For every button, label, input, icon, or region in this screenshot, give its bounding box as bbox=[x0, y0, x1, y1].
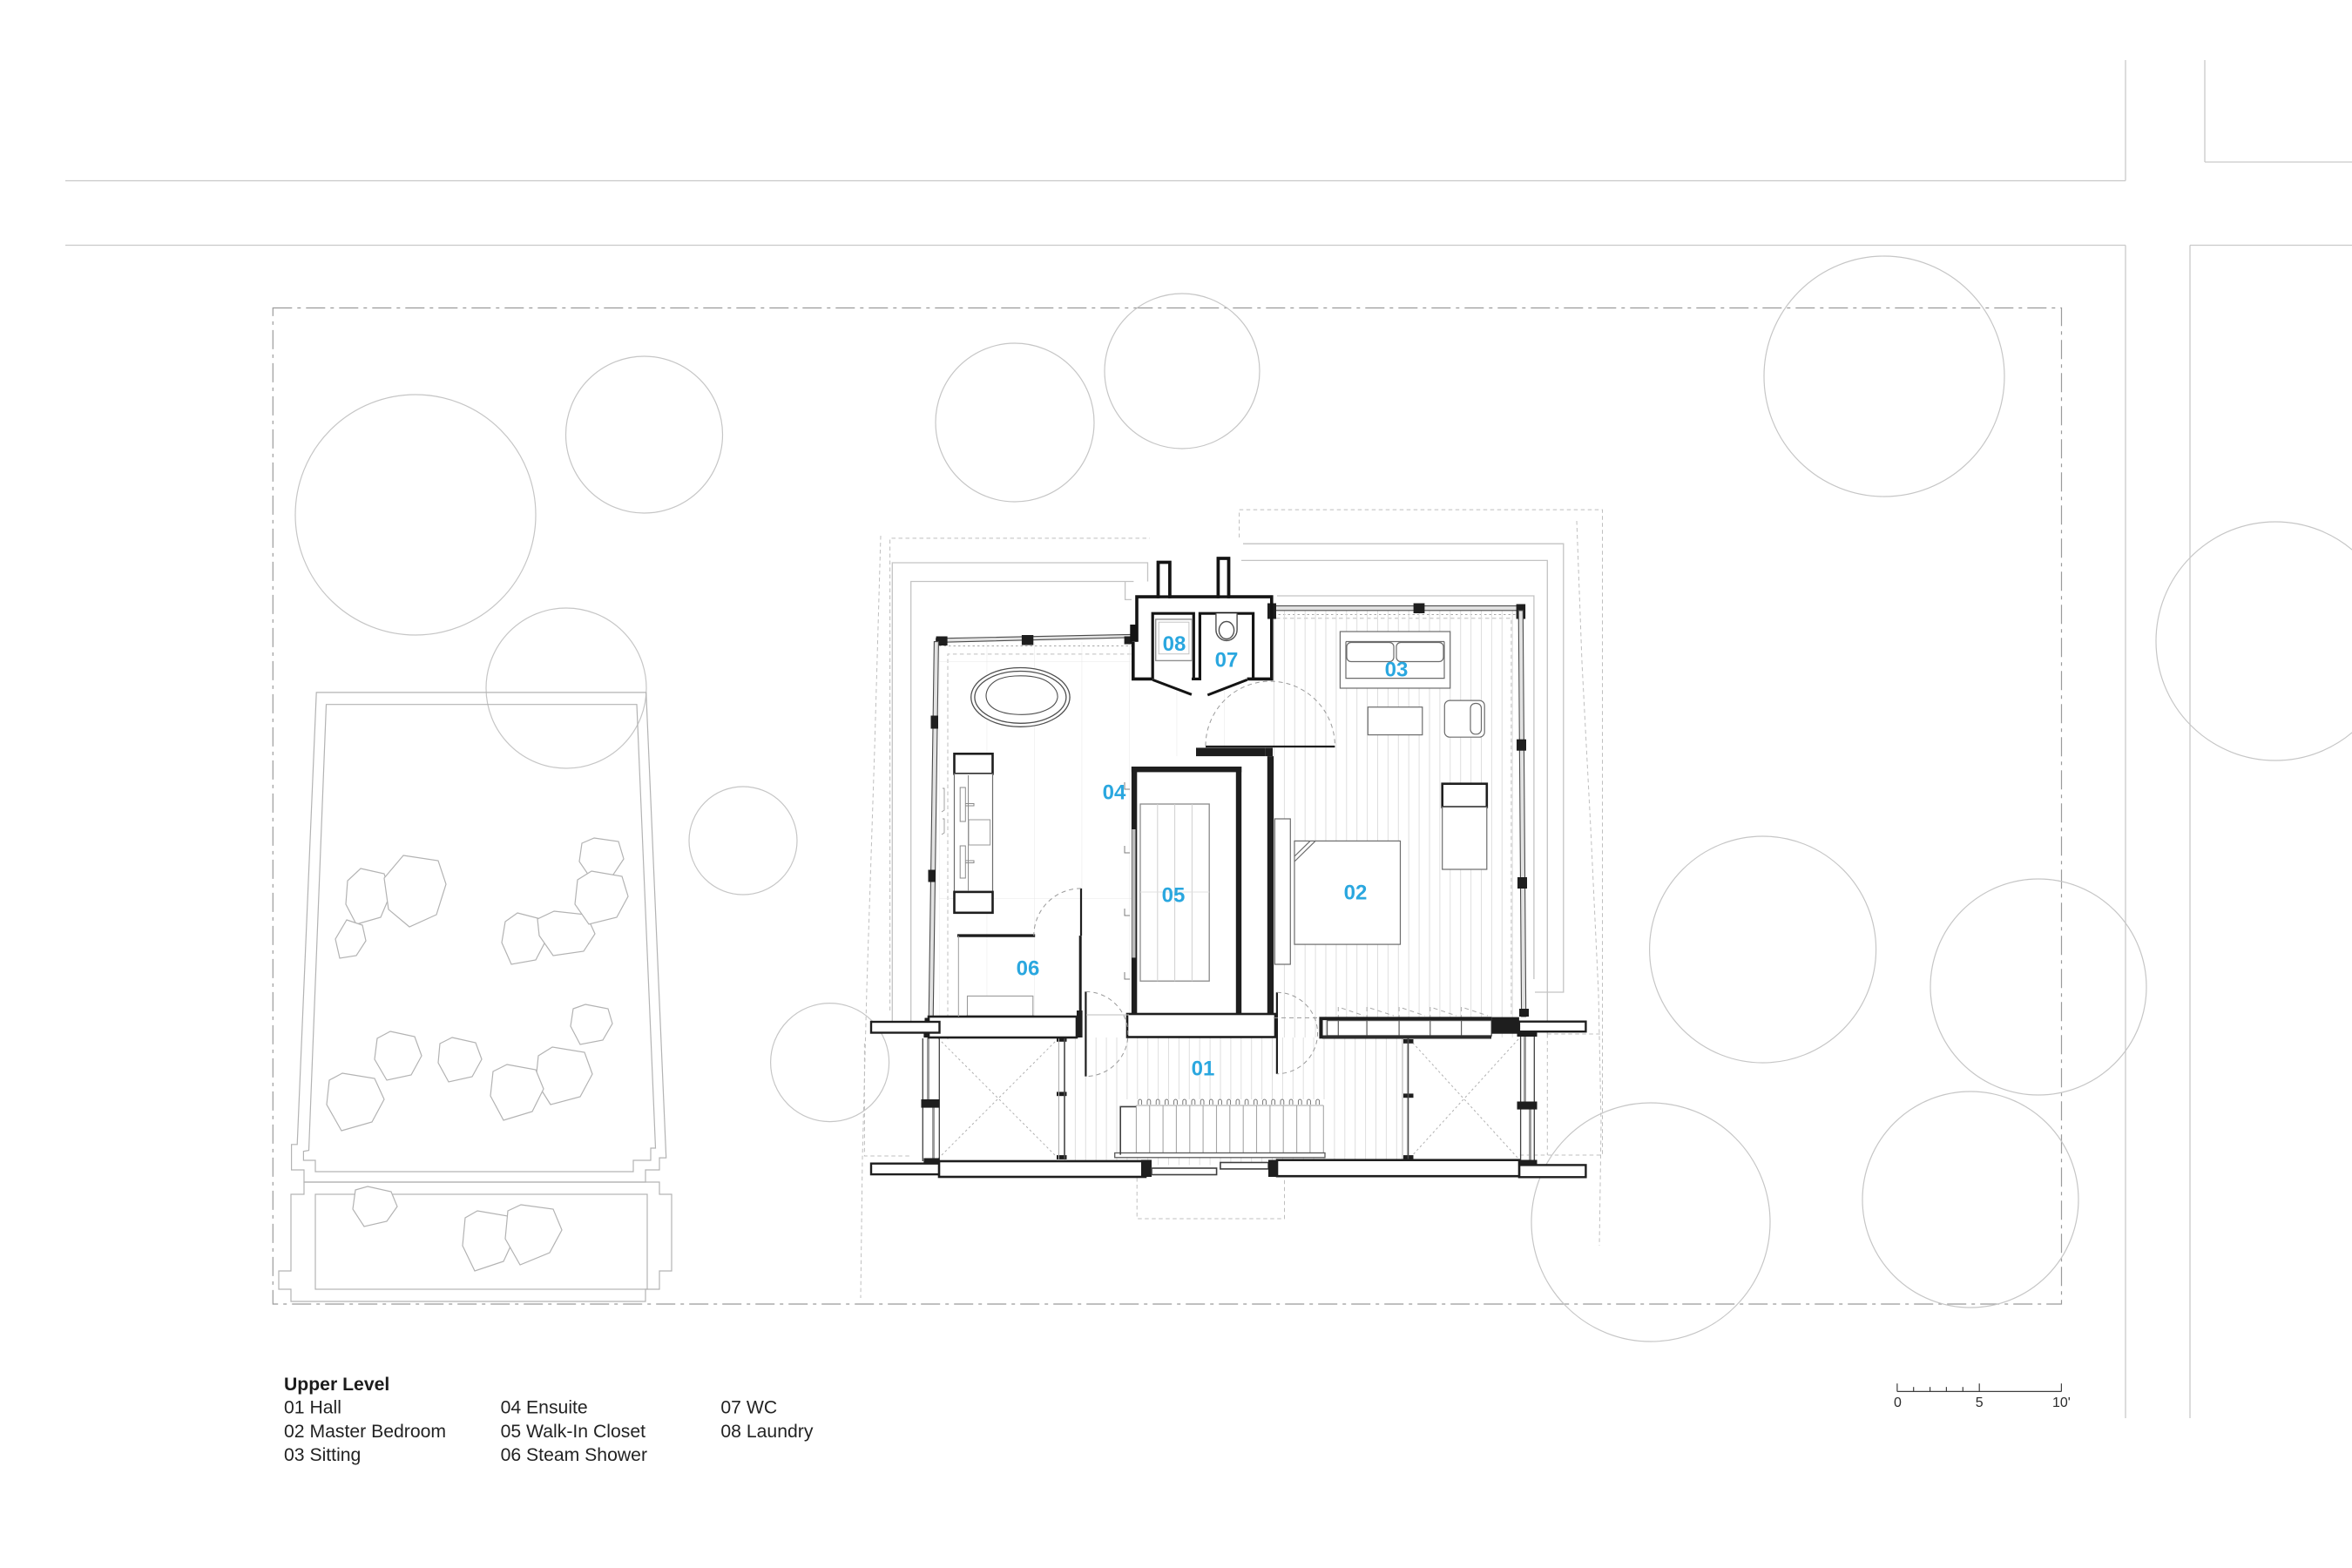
svg-text:08 Laundry: 08 Laundry bbox=[720, 1422, 813, 1442]
svg-text:5: 5 bbox=[1976, 1396, 1984, 1410]
svg-text:05 Walk-In Closet: 05 Walk-In Closet bbox=[501, 1422, 646, 1442]
svg-text:04: 04 bbox=[1103, 781, 1126, 805]
svg-text:04 Ensuite: 04 Ensuite bbox=[501, 1398, 588, 1418]
svg-text:02 Master Bedroom: 02 Master Bedroom bbox=[284, 1422, 446, 1442]
svg-text:05: 05 bbox=[1162, 884, 1186, 908]
svg-text:01 Hall: 01 Hall bbox=[284, 1398, 341, 1418]
svg-text:Upper Level: Upper Level bbox=[284, 1375, 389, 1395]
svg-text:01: 01 bbox=[1192, 1058, 1215, 1081]
svg-text:07 WC: 07 WC bbox=[720, 1398, 777, 1418]
svg-text:0: 0 bbox=[1894, 1396, 1902, 1410]
svg-text:02: 02 bbox=[1344, 882, 1368, 905]
svg-text:08: 08 bbox=[1163, 632, 1186, 656]
svg-text:06 Steam Shower: 06 Steam Shower bbox=[501, 1445, 647, 1465]
svg-text:06: 06 bbox=[1017, 957, 1040, 981]
svg-text:07: 07 bbox=[1215, 649, 1239, 672]
svg-text:10': 10' bbox=[2052, 1396, 2071, 1410]
svg-text:03: 03 bbox=[1385, 659, 1409, 682]
svg-text:03 Sitting: 03 Sitting bbox=[284, 1445, 361, 1465]
